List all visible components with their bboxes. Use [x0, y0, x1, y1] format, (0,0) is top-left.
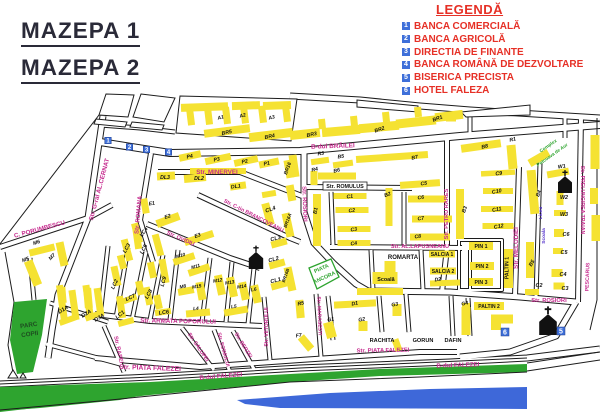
svg-text:P3: P3 [213, 156, 221, 163]
svg-text:B4: B4 [535, 189, 543, 197]
svg-text:DAFIN: DAFIN [444, 338, 461, 344]
svg-text:B5: B5 [337, 154, 345, 161]
svg-text:DL1: DL1 [231, 183, 242, 190]
svg-text:D1: D1 [351, 300, 359, 307]
svg-text:DL2: DL2 [194, 176, 204, 182]
svg-text:Str. PRELUNGIREA TRAIAN: Str. PRELUNGIREA TRAIAN [579, 166, 585, 235]
svg-text:ROMARTA: ROMARTA [388, 255, 419, 261]
svg-text:P4: P4 [186, 153, 194, 160]
svg-text:B1: B1 [312, 207, 319, 215]
svg-text:LC9: LC9 [160, 276, 168, 287]
svg-text:M6: M6 [32, 239, 41, 247]
svg-text:Str. PIATA FALEZEI: Str. PIATA FALEZEI [119, 364, 181, 373]
svg-text:C9: C9 [495, 171, 503, 178]
svg-text:G4: G4 [461, 300, 469, 307]
svg-text:Str. ARMATA POPORULUI: Str. ARMATA POPORULUI [140, 317, 216, 325]
svg-text:C5: C5 [420, 181, 428, 188]
svg-text:Str. SALUPEI: Str. SALUPEI [186, 332, 210, 364]
svg-text:Str. ROMULUS: Str. ROMULUS [326, 184, 364, 190]
svg-text:Str. PIATA FALEZEI: Str. PIATA FALEZEI [357, 348, 410, 355]
svg-text:Str. C-tin BRANCOVEANU: Str. C-tin BRANCOVEANU [222, 198, 284, 234]
svg-text:SALCIA 1: SALCIA 1 [431, 252, 454, 258]
svg-text:C12: C12 [493, 223, 504, 231]
svg-text:C2: C2 [348, 208, 356, 215]
svg-text:SALCIA 2: SALCIA 2 [432, 269, 455, 275]
svg-text:C4: C4 [350, 241, 358, 248]
svg-text:Liceu: Liceu [538, 207, 544, 220]
svg-text:Str. VIITORULUI: Str. VIITORULUI [264, 307, 270, 347]
svg-text:BR3: BR3 [306, 131, 318, 139]
svg-text:Str. ROSIORI: Str. ROSIORI [300, 186, 307, 222]
svg-text:B8: B8 [481, 143, 489, 150]
svg-text:C1: C1 [346, 194, 354, 201]
svg-text:PIN 1: PIN 1 [475, 244, 488, 250]
svg-text:C10: C10 [491, 188, 502, 196]
svg-text:6: 6 [503, 330, 507, 337]
svg-text:C6: C6 [417, 195, 425, 202]
svg-text:R5: R5 [297, 300, 305, 307]
svg-text:L4: L4 [193, 306, 199, 312]
svg-text:C8: C8 [414, 234, 422, 241]
svg-text:M8: M8 [179, 283, 187, 290]
svg-text:B3: B3 [461, 205, 469, 213]
svg-text:PESCARUS: PESCARUS [584, 262, 591, 292]
svg-text:PALTIN 2: PALTIN 2 [478, 304, 500, 310]
svg-text:C5: C5 [561, 250, 569, 256]
svg-text:Str. MINERVEI: Str. MINERVEI [196, 169, 238, 176]
svg-text:R4: R4 [311, 166, 319, 173]
svg-text:L5: L5 [231, 304, 238, 311]
svg-text:DL3: DL3 [160, 175, 170, 181]
svg-text:Scoala: Scoala [541, 228, 547, 244]
svg-text:Str. ROSIORI: Str. ROSIORI [531, 298, 567, 304]
svg-text:RACHITA: RACHITA [370, 338, 395, 344]
svg-text:W2: W2 [560, 195, 568, 201]
svg-text:C3: C3 [350, 227, 358, 234]
svg-text:C4: C4 [560, 272, 567, 278]
svg-text:E1: E1 [148, 200, 155, 207]
svg-text:PIN 2: PIN 2 [476, 264, 489, 270]
svg-text:Str. BERZEI: Str. BERZEI [233, 332, 254, 360]
svg-text:B-dul BRĂILEI: B-dul BRĂILEI [311, 140, 355, 151]
svg-text:P1: P1 [263, 160, 271, 167]
svg-text:R1: R1 [509, 136, 517, 143]
svg-text:C3: C3 [562, 286, 569, 292]
svg-text:GORUN: GORUN [413, 338, 434, 344]
svg-text:Str. MELODIEI: Str. MELODIEI [513, 227, 520, 269]
svg-text:G1: G1 [327, 316, 335, 323]
svg-text:M7: M7 [48, 252, 58, 262]
svg-text:C2: C2 [536, 283, 543, 289]
svg-text:5: 5 [559, 329, 563, 336]
svg-text:Scoală: Scoală [377, 277, 395, 283]
svg-text:G2: G2 [358, 316, 366, 323]
svg-text:W3: W3 [560, 212, 568, 218]
svg-text:P2: P2 [241, 158, 249, 165]
svg-text:R3: R3 [317, 151, 325, 158]
svg-text:Str. PETRU RARES: Str. PETRU RARES [444, 188, 450, 239]
svg-text:PIN 3: PIN 3 [475, 280, 488, 286]
svg-text:G3: G3 [391, 301, 399, 308]
svg-text:Str. AL.LAPUSNEANU: Str. AL.LAPUSNEANU [391, 244, 449, 250]
svg-text:D2: D2 [434, 277, 442, 284]
svg-text:PALTIN 1: PALTIN 1 [505, 257, 511, 279]
svg-text:C11: C11 [492, 206, 502, 214]
svg-text:C6: C6 [563, 232, 571, 238]
